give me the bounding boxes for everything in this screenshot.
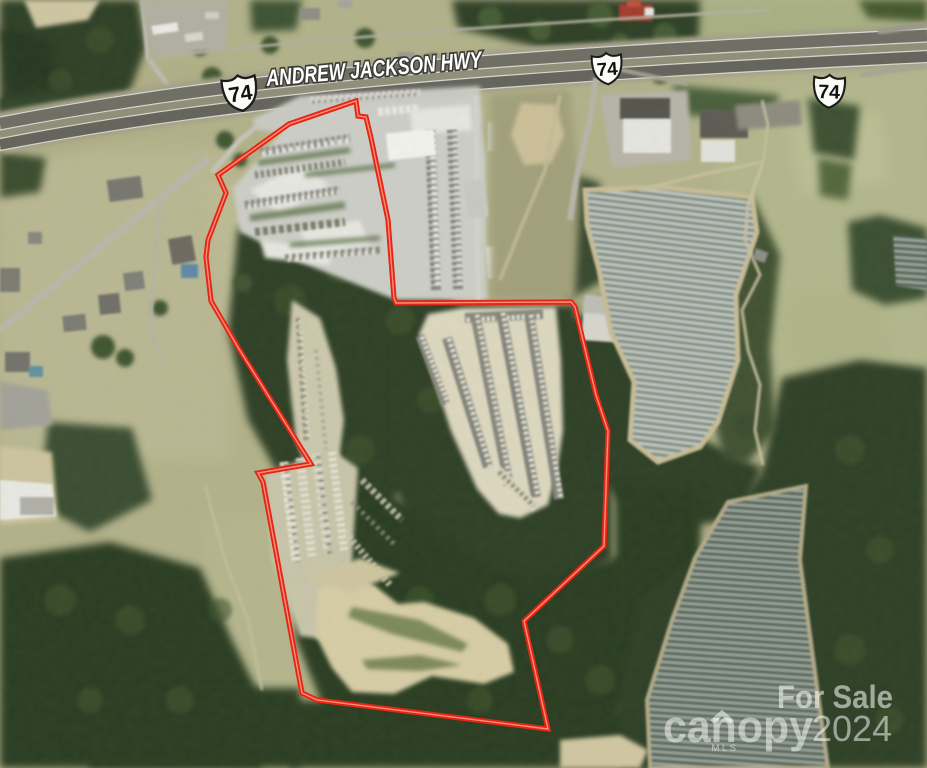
svg-text:MLS: MLS bbox=[711, 743, 738, 754]
svg-text:2024: 2024 bbox=[812, 708, 892, 749]
